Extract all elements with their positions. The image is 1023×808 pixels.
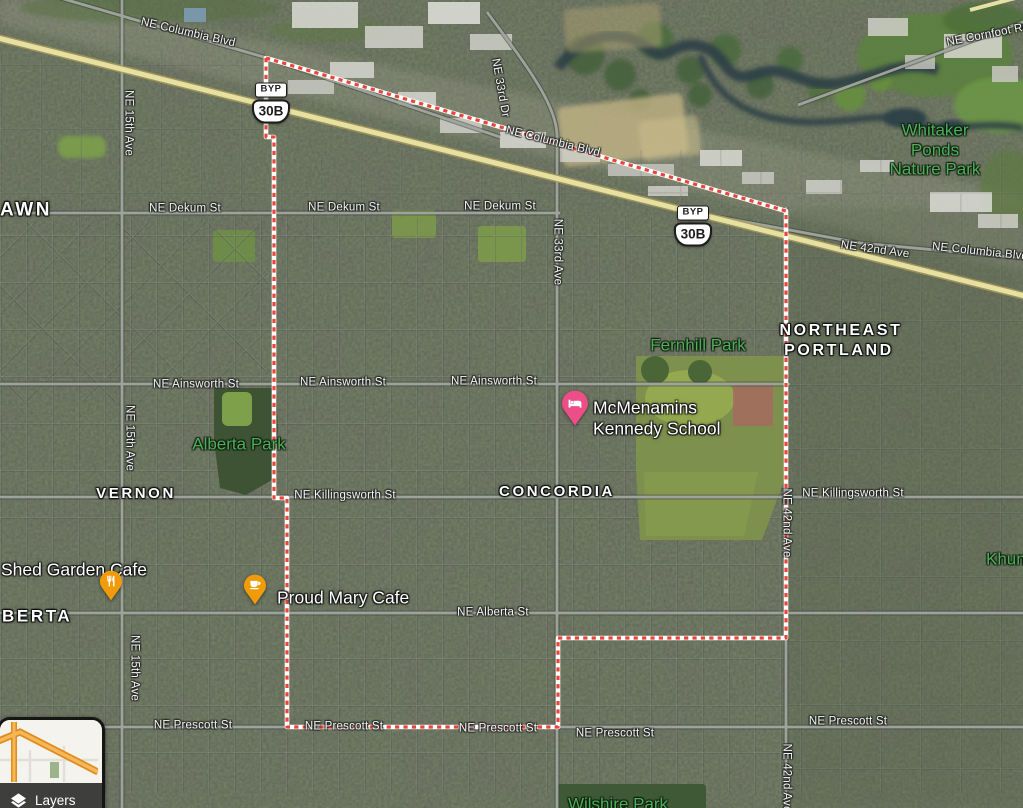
park-label-alberta-park[interactable]: Alberta Park: [192, 436, 286, 455]
street-label-ne-alberta-st: NE Alberta St: [457, 607, 529, 620]
street-label-ne-killingsworth-st: NE Killingsworth St: [802, 488, 904, 501]
route-shield-1: BYP30B: [252, 82, 290, 123]
street-label-ne-prescott-st: NE Prescott St: [809, 716, 887, 729]
street-label-ne-15th-ave: NE 15th Ave: [123, 405, 136, 471]
park-label-fernhill-park[interactable]: Fernhill Park: [650, 337, 745, 356]
street-label-ne-killingsworth-st: NE Killingsworth St: [294, 490, 396, 503]
satellite-map-canvas[interactable]: NE Columbia BlvdNE Columbia BlvdNE Colum…: [0, 0, 1023, 808]
street-label-ne-columbia-blvd: NE Columbia Blvd: [140, 16, 237, 50]
street-label-ne-prescott-st: NE Prescott St: [154, 720, 232, 733]
layers-button[interactable]: Layers: [0, 783, 102, 808]
street-label-ne-33rd-ave: NE 33rd Ave: [551, 219, 564, 286]
us-route-shield: 30B: [252, 99, 290, 123]
poi-label-mcmenamins-kennedy-school-line2[interactable]: Kennedy School: [593, 419, 720, 438]
street-label-ne-dekum-st: NE Dekum St: [308, 202, 380, 215]
street-label-ne-prescott-st: NE Prescott St: [459, 723, 537, 736]
byp-banner: BYP: [677, 205, 708, 220]
street-label-ne-ainsworth-st: NE Ainsworth St: [153, 379, 239, 392]
layers-icon: [9, 791, 28, 808]
street-label-ne-15th-ave: NE 15th Ave: [122, 90, 135, 156]
us-route-shield: 30B: [674, 222, 712, 246]
area-label-northeast: NORTHEAST: [780, 322, 903, 340]
area-label-portland: PORTLAND: [784, 342, 894, 360]
poi-label-mcmenamins-kennedy-school-line1[interactable]: McMenamins: [593, 398, 697, 417]
street-label-ne-columbia-blvd: NE Columbia Blvd: [505, 124, 602, 160]
byp-banner: BYP: [255, 82, 286, 97]
area-label-berta: BERTA: [2, 608, 72, 627]
street-label-ne-prescott-st: NE Prescott St: [305, 721, 383, 734]
park-label-khuna[interactable]: Khuna: [986, 551, 1023, 570]
poi-label-shed-garden-cafe[interactable]: Shed Garden Cafe: [1, 560, 147, 579]
area-label-awn: AWN: [0, 201, 52, 222]
street-label-ne-dekum-st: NE Dekum St: [149, 203, 221, 216]
street-label-ne-33rd-dr: NE 33rd Dr: [489, 58, 512, 119]
street-label-ne-cornfoot-rd: NE Cornfoot Rd: [946, 21, 1023, 49]
park-label-ponds[interactable]: Ponds: [911, 142, 959, 161]
layers-control[interactable]: Layers: [0, 717, 105, 808]
park-label-nature-park[interactable]: Nature Park: [890, 161, 981, 180]
layers-label: Layers: [35, 793, 76, 808]
cafe-pin-icon-proud-mary-cafe[interactable]: [244, 574, 267, 610]
street-label-ne-columbia-blvd: NE Columbia Blvd: [931, 241, 1023, 264]
street-label-ne-42nd-ave: NE 42nd Ave: [780, 488, 793, 557]
street-label-ne-15th-ave: NE 15th Ave: [128, 635, 141, 701]
route-shield-2: BYP30B: [674, 205, 712, 246]
lodging-pin-icon-mcmenamins-kennedy-school[interactable]: [562, 390, 589, 431]
park-label-whitaker[interactable]: Whitaker: [901, 122, 968, 141]
street-label-ne-dekum-st: NE Dekum St: [464, 201, 536, 214]
area-label-vernon: VERNON: [96, 486, 176, 503]
map-label-layer: NE Columbia BlvdNE Columbia BlvdNE Colum…: [0, 0, 1023, 808]
restaurant-pin-icon-shed-garden-cafe[interactable]: [100, 570, 123, 606]
street-label-ne-ainsworth-st: NE Ainsworth St: [300, 377, 386, 390]
area-label-concordia: CONCORDIA: [499, 484, 615, 501]
street-label-ne-ainsworth-st: NE Ainsworth St: [451, 376, 537, 389]
street-label-ne-prescott-st: NE Prescott St: [576, 728, 654, 741]
poi-label-proud-mary-cafe[interactable]: Proud Mary Cafe: [277, 588, 409, 607]
map-type-thumbnail: [0, 720, 98, 782]
street-label-ne-42nd-ave: NE 42nd Ave: [780, 743, 793, 808]
park-label-wilshire-park[interactable]: Wilshire Park: [568, 796, 668, 808]
street-label-ne-42nd-ave: NE 42nd Ave: [840, 239, 910, 261]
